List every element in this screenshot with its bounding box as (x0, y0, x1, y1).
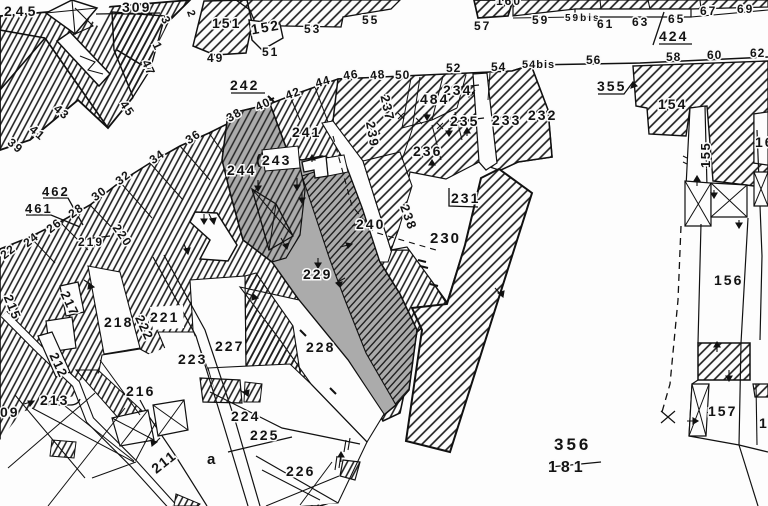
svg-text:67: 67 (700, 4, 717, 18)
svg-text:1: 1 (759, 415, 768, 431)
svg-text:244: 244 (227, 162, 256, 178)
svg-text:57: 57 (474, 19, 491, 33)
svg-text:61: 61 (597, 17, 614, 31)
svg-text:240: 240 (356, 216, 385, 232)
svg-text:46: 46 (342, 67, 359, 83)
svg-text:224: 224 (231, 408, 260, 424)
svg-text:356: 356 (554, 435, 591, 454)
svg-text:56: 56 (586, 53, 601, 67)
svg-text:230: 230 (430, 230, 461, 247)
svg-text:54bis: 54bis (522, 59, 555, 71)
svg-text:59: 59 (532, 13, 549, 27)
svg-text:54: 54 (491, 60, 506, 74)
svg-text:241: 241 (292, 124, 321, 140)
svg-text:181: 181 (548, 459, 587, 476)
svg-text:69: 69 (737, 2, 754, 16)
svg-text:461: 461 (25, 201, 53, 216)
svg-text:233: 233 (492, 112, 521, 128)
svg-text:60: 60 (707, 48, 722, 62)
svg-text:63: 63 (632, 15, 649, 29)
svg-text:65: 65 (668, 12, 685, 26)
svg-text:50: 50 (395, 68, 410, 82)
svg-text:219: 219 (78, 235, 104, 249)
svg-text:218: 218 (104, 314, 133, 330)
svg-text:(: ( (256, 151, 261, 167)
svg-text:242: 242 (230, 77, 259, 93)
svg-text:55: 55 (362, 13, 379, 27)
svg-text:243: 243 (262, 152, 291, 168)
svg-text:229: 229 (303, 266, 332, 282)
svg-text:156: 156 (714, 272, 743, 288)
svg-text:52: 52 (446, 61, 461, 75)
svg-text:53: 53 (304, 22, 321, 36)
svg-text:a: a (207, 451, 217, 468)
svg-text:49: 49 (207, 51, 224, 65)
svg-text:154: 154 (658, 96, 687, 112)
svg-text:221: 221 (150, 309, 179, 325)
svg-text:48: 48 (369, 67, 386, 83)
svg-text:155: 155 (698, 142, 713, 168)
svg-text:59bis: 59bis (565, 13, 601, 24)
svg-text:235: 235 (450, 113, 479, 129)
svg-text:51: 51 (262, 45, 279, 59)
svg-text:462: 462 (42, 184, 70, 199)
svg-text:484: 484 (420, 91, 449, 107)
svg-text:213: 213 (40, 392, 69, 408)
svg-text:309: 309 (122, 0, 151, 15)
svg-text:226: 226 (286, 463, 315, 479)
svg-text:151: 151 (212, 15, 241, 31)
svg-text:16: 16 (755, 134, 768, 150)
svg-text:223: 223 (178, 351, 207, 367)
svg-text:09: 09 (0, 404, 20, 420)
svg-text:424: 424 (659, 28, 688, 44)
svg-text:232: 232 (528, 107, 557, 123)
svg-text:160: 160 (496, 0, 522, 8)
svg-text:228: 228 (306, 339, 335, 355)
svg-text:58: 58 (666, 50, 681, 64)
svg-text:157: 157 (708, 403, 737, 419)
svg-text:227: 227 (215, 338, 244, 354)
svg-text:62: 62 (750, 46, 765, 60)
svg-text:236: 236 (413, 143, 442, 159)
svg-text:231: 231 (451, 190, 480, 206)
svg-text:225: 225 (250, 427, 279, 443)
svg-text:245: 245 (4, 3, 39, 19)
svg-text:216: 216 (126, 383, 155, 399)
svg-text:355: 355 (597, 78, 626, 94)
